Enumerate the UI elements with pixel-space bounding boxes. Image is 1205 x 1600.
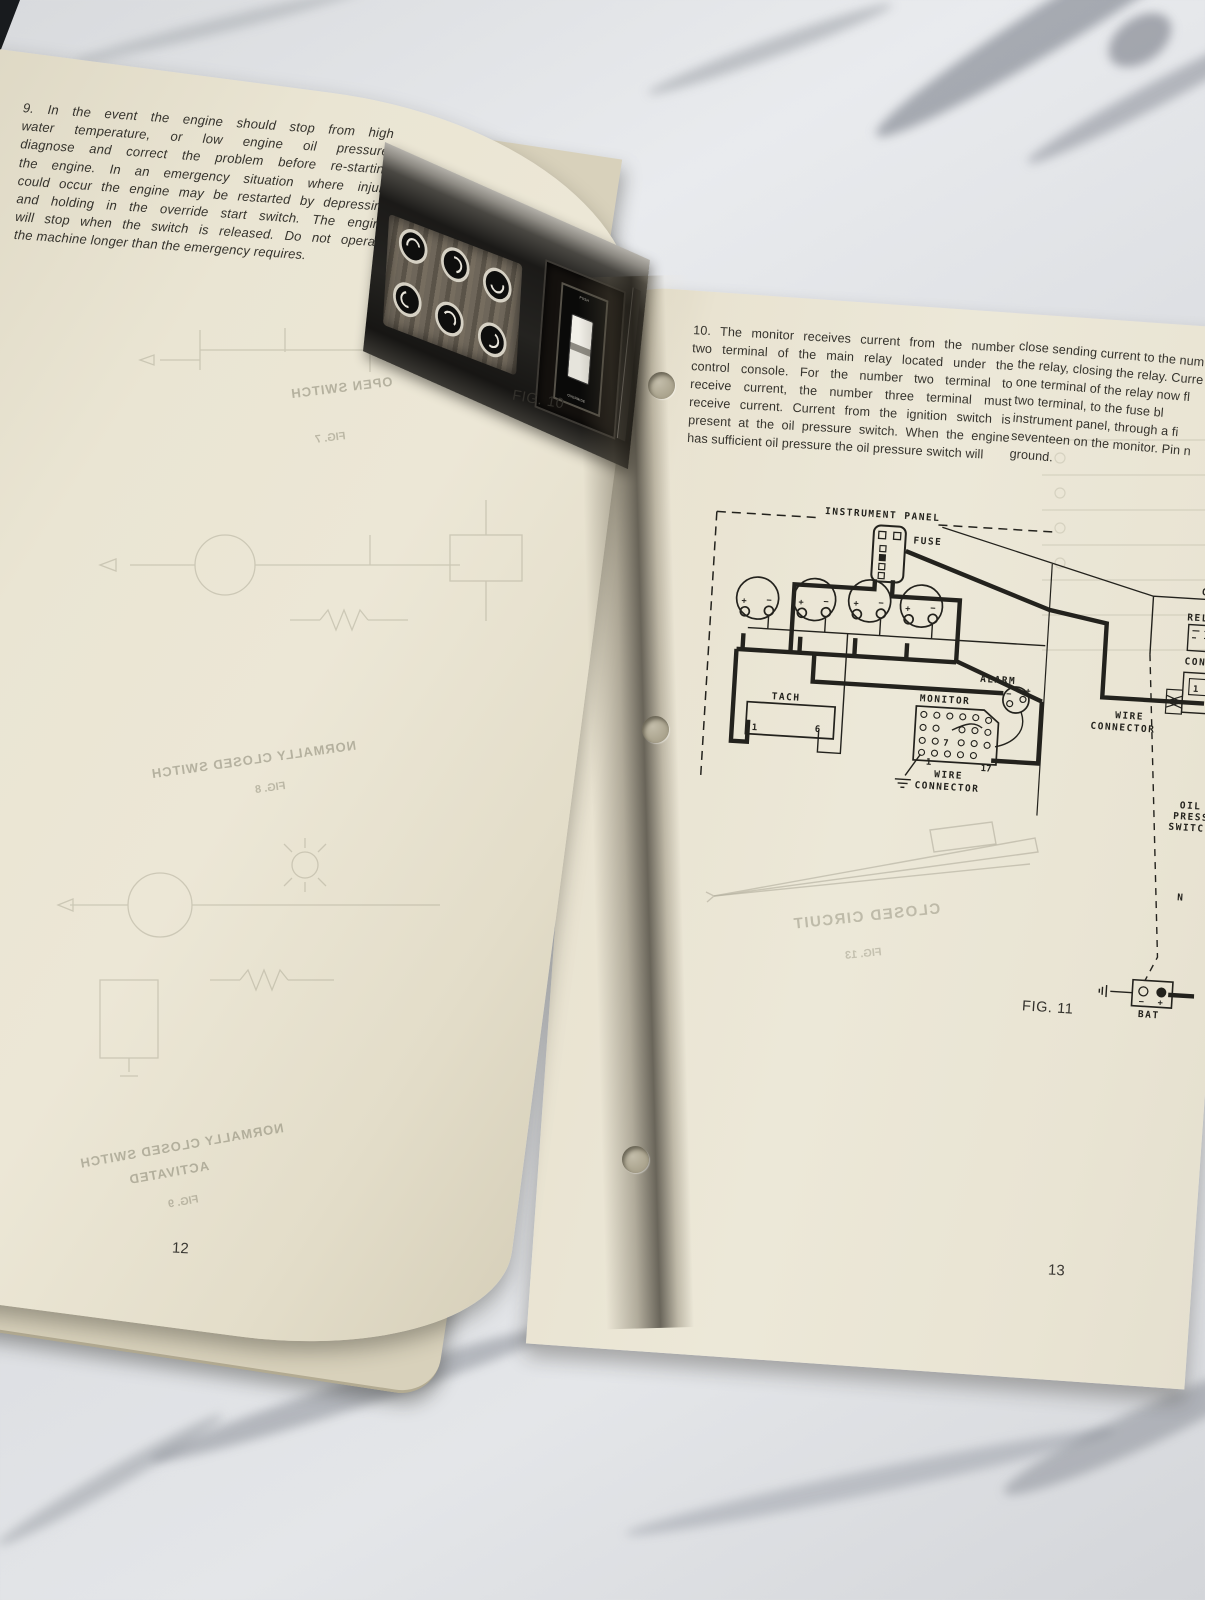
monitor-pins	[918, 711, 992, 759]
monitor-label: MONITOR	[919, 693, 970, 707]
battery-minus: −	[1138, 997, 1144, 1007]
indicator-symbol-icon	[434, 297, 464, 341]
paragraph-10-col1: 10. The monitor receives current from th…	[687, 321, 1016, 465]
svg-text:−: −	[930, 604, 936, 614]
console-box	[1130, 596, 1205, 983]
wires-thick	[717, 541, 1205, 996]
battery-plus: +	[1157, 998, 1163, 1008]
monitor-pin7: 7	[943, 739, 949, 749]
marble-vein	[645, 0, 895, 102]
left-page-number: 12	[172, 1240, 190, 1258]
alarm-minus: −	[1006, 689, 1012, 699]
marble-vein	[1099, 2, 1182, 78]
paragraph-10-col2: close sending current to the num the rel…	[1009, 337, 1205, 481]
svg-text:−: −	[766, 596, 772, 606]
indicator-symbol-icon	[397, 224, 427, 268]
wires-thin	[727, 612, 1154, 999]
instrument-panel-label: INSTRUMENT PANEL	[825, 506, 941, 524]
n-label: N	[1177, 892, 1185, 903]
marble-vein	[73, 0, 368, 69]
relay-label-partial: RELA	[1187, 612, 1205, 625]
indicator-symbol-icon	[391, 278, 421, 322]
tach-box	[745, 702, 835, 739]
panel-right-edge	[1037, 564, 1052, 816]
svg-text:+: +	[853, 599, 859, 609]
tach-label: TACH	[771, 691, 801, 704]
wire-connector-right-l1: WIRE	[1115, 710, 1145, 723]
monitor-wire-label: WIRE	[934, 769, 964, 782]
marble-vein	[623, 1418, 1117, 1545]
binder-hole	[622, 1146, 649, 1173]
fuse-block	[871, 525, 906, 583]
svg-text:+: +	[905, 604, 911, 614]
console-box-pin1: 1	[1193, 685, 1199, 695]
monitor-pin17: 17	[980, 764, 991, 775]
tach-pin6: 6	[814, 725, 820, 735]
indicator-symbol-icon	[440, 243, 470, 287]
override-switch-panel: PUSH OVERRIDE	[534, 259, 626, 440]
alarm-plus: +	[1025, 687, 1031, 697]
marble-vein	[0, 1406, 228, 1553]
indicator-symbol-icon	[482, 264, 512, 308]
switch-label-partial: SWITC	[1168, 822, 1205, 835]
switch-override-label: OVERRIDE	[567, 394, 585, 405]
binder-hole	[648, 372, 675, 399]
svg-text:−: −	[823, 597, 829, 607]
marble-vein	[864, 0, 1205, 155]
wire-connector-right-l2: CONNECTOR	[1090, 721, 1156, 736]
indicator-symbol-icon	[476, 318, 506, 362]
fig11-wiring-diagram: INSTRUMENT PANEL FUSE	[672, 477, 1205, 1048]
tach-pin1: 1	[751, 723, 757, 733]
svg-text:−: −	[878, 598, 884, 608]
svg-text:+: +	[798, 598, 804, 608]
monitor-pin1: 1	[926, 758, 932, 768]
wood-panel	[382, 214, 522, 376]
battery-label: BAT	[1138, 1009, 1160, 1021]
panel-to-console-line	[939, 527, 1157, 596]
alarm-label: ALARM	[980, 674, 1017, 687]
svg-text:+: +	[741, 596, 747, 606]
right-page-number: 13	[1048, 1262, 1066, 1280]
paragraph-9: 9. In the event the engine should stop f…	[13, 99, 394, 270]
switch-push-label: PUSH	[579, 295, 589, 302]
console-label-partial: CO	[1201, 587, 1205, 599]
binder-hole	[642, 716, 669, 743]
photo-of-open-manual: { "left_page": { "para9_lines": [ "9. In…	[0, 0, 1205, 1600]
connector-label-partial: CON	[1184, 656, 1205, 668]
monitor-connector-label: CONNECTOR	[914, 780, 980, 795]
marble-vein	[1022, 11, 1205, 173]
fuse-label: FUSE	[913, 535, 943, 548]
table-corner-shadow	[0, 0, 20, 52]
override-rocker-switch	[567, 313, 593, 386]
instrument-panel-border	[701, 511, 1053, 797]
